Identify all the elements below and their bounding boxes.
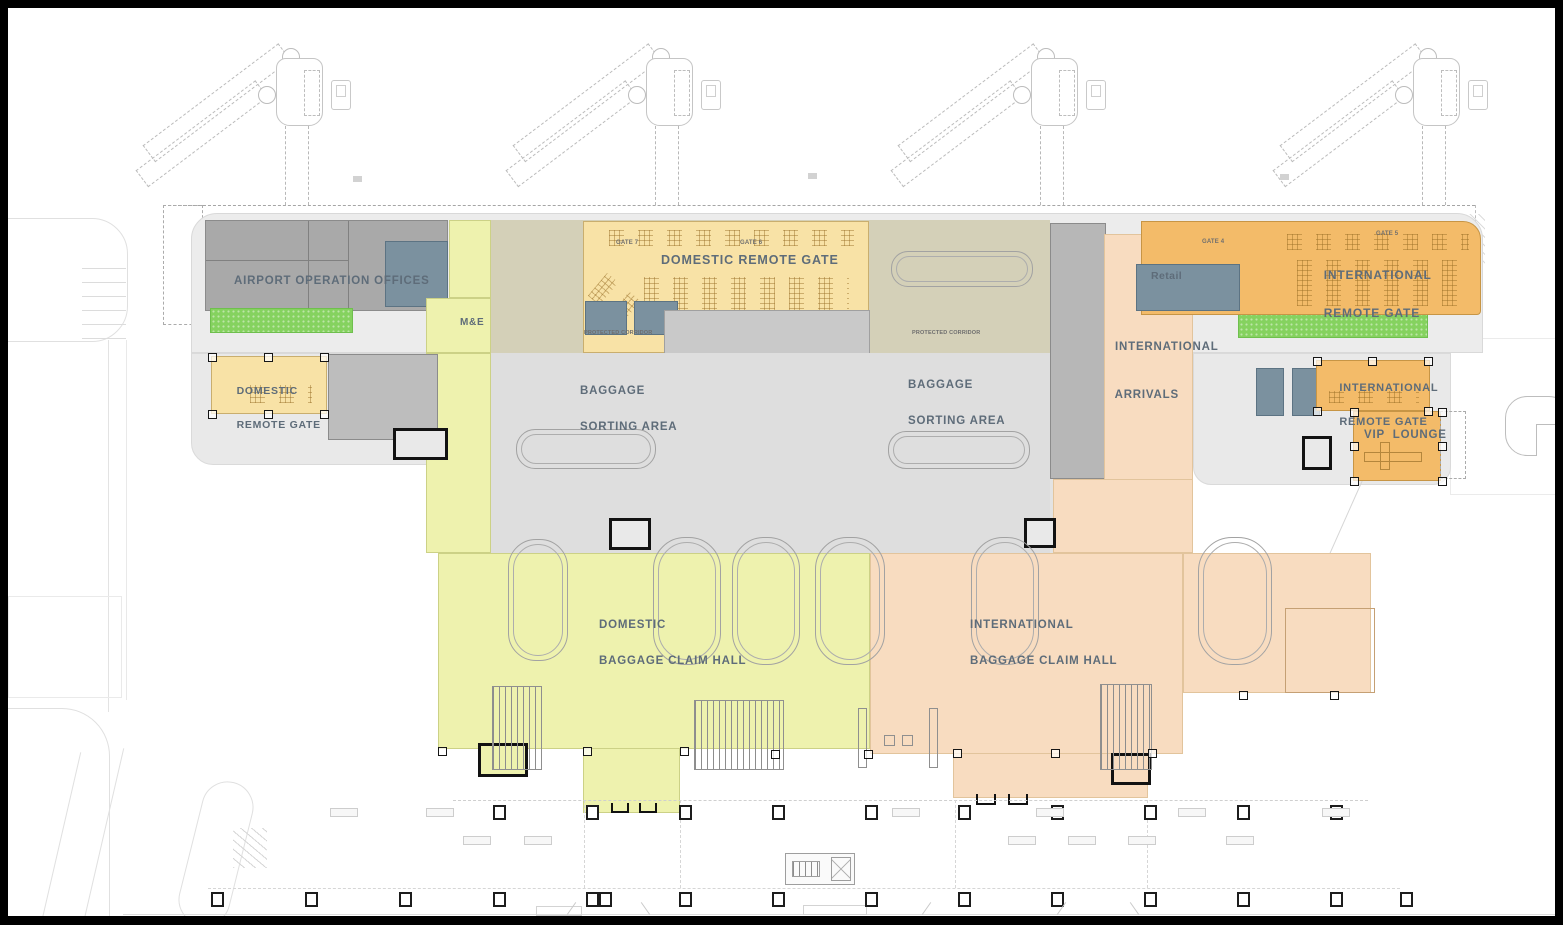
- edge-column-marker: [1313, 407, 1322, 416]
- bench-marker: [1226, 836, 1254, 845]
- label-line: ARRIVALS: [1115, 389, 1179, 401]
- landscape-strip-left: [210, 308, 353, 333]
- edge-column-marker: [1424, 407, 1433, 416]
- label-line: INTERNATIONAL: [1324, 268, 1432, 282]
- edge-column-marker: [1330, 691, 1339, 700]
- bench-marker: [426, 808, 454, 817]
- fixed-walkway-inner: [1441, 70, 1457, 116]
- guide-line: [1063, 126, 1064, 205]
- edge-column-marker: [583, 747, 592, 756]
- column-marker: [1330, 892, 1343, 907]
- edge-column-marker: [680, 747, 689, 756]
- column-marker: [772, 892, 785, 907]
- edge-column-marker: [864, 750, 873, 759]
- label-gate-6: GATE 6: [740, 240, 762, 246]
- toilet-block-right: [1100, 684, 1152, 770]
- black-room-3: [1024, 518, 1056, 548]
- edge-column-marker: [1148, 749, 1157, 758]
- plaza-dashed-line: [453, 800, 1368, 801]
- label-intl-remote-gate-main: INTERNATIONAL REMOTE GATE: [1307, 247, 1432, 342]
- rotunda-icon: [1395, 86, 1413, 104]
- edge-column-marker: [1350, 408, 1359, 417]
- label-me: M&E: [460, 315, 484, 331]
- bench-marker: [1178, 808, 1206, 817]
- bench-marker: [1008, 836, 1036, 845]
- column-marker: [1144, 892, 1157, 907]
- label-domestic-claim: DOMESTIC BAGGAGE CLAIM HALL: [583, 598, 746, 688]
- seating-cluster-rows: [609, 230, 854, 246]
- rotunda-icon: [1013, 86, 1031, 104]
- edge-column-marker: [208, 353, 217, 362]
- kiosk-shaft-icon: [831, 857, 851, 881]
- guide-line: [1040, 126, 1041, 205]
- edge-column-marker: [1350, 442, 1359, 451]
- domestic-hall-entry-bay: [583, 748, 680, 813]
- island-chevrons: [233, 828, 267, 868]
- toilet-block-left: [492, 686, 542, 770]
- edge-column-marker: [1438, 477, 1447, 486]
- label-baggage-sorting-right: BAGGAGE SORTING AREA: [892, 358, 1005, 448]
- label-baggage-sorting-left: BAGGAGE SORTING AREA: [564, 364, 677, 454]
- plaza-dashed-line-2: [208, 888, 1400, 889]
- label-line: INTERNATIONAL: [1115, 341, 1219, 353]
- edge-column-marker: [320, 410, 329, 419]
- column-marker: [772, 805, 785, 820]
- label-line: REMOTE GATE: [1324, 306, 1420, 320]
- column-marker: [493, 892, 506, 907]
- column-marker: [679, 892, 692, 907]
- rotunda-icon: [258, 86, 276, 104]
- edge-column-marker: [1424, 357, 1433, 366]
- column-marker: [1144, 805, 1157, 820]
- vip-furniture: [1364, 452, 1422, 462]
- edge-column-marker: [1368, 357, 1377, 366]
- apron-equipment-box: [331, 80, 351, 110]
- baggage-carousel: [891, 251, 1033, 287]
- apron-marker-box: [353, 176, 362, 182]
- black-room-1: [393, 428, 448, 460]
- apron-marker-box: [1280, 174, 1289, 180]
- road-curve-bottom-left: [8, 708, 110, 916]
- column-marker: [1237, 805, 1250, 820]
- road-tick: [922, 902, 931, 915]
- column-marker: [399, 892, 412, 907]
- label-line: BAGGAGE: [580, 385, 645, 397]
- road-loop-right-notch: [1536, 424, 1555, 456]
- road-tick: [641, 902, 650, 915]
- edge-column-marker: [264, 353, 273, 362]
- label-line: SORTING AREA: [580, 421, 677, 433]
- bench-marker: [1322, 808, 1350, 817]
- east-hall-rooms: [1285, 608, 1375, 693]
- jet-bridge-group-4: [1295, 10, 1495, 205]
- arrivals-core-rooms-left: [1050, 223, 1106, 479]
- entry-door: [611, 803, 629, 813]
- label-line: INTERNATIONAL: [970, 619, 1074, 631]
- road-tick: [1130, 902, 1139, 915]
- column-marker: [958, 805, 971, 820]
- column-marker: [211, 892, 224, 907]
- edge-column-marker: [320, 353, 329, 362]
- jet-bridge-icon: [136, 80, 268, 187]
- column-marker: [599, 892, 612, 907]
- label-international-arrivals: INTERNATIONAL ARRIVALS: [1099, 311, 1219, 431]
- label-line: BAGGAGE CLAIM HALL: [599, 655, 746, 667]
- edge-column-marker: [264, 410, 273, 419]
- guide-line: [285, 126, 286, 205]
- curb-rect-1: [536, 906, 582, 916]
- jet-bridge-group-2: [528, 10, 728, 205]
- jet-bridge-icon: [1273, 80, 1405, 187]
- column-marker: [865, 892, 878, 907]
- toilet-block-center: [694, 700, 784, 770]
- apron-equipment-box: [701, 80, 721, 110]
- apron-equipment-box: [1468, 80, 1488, 110]
- edge-column-marker: [1313, 357, 1322, 366]
- fixed-walkway-inner: [1059, 70, 1075, 116]
- label-line: INTERNATIONAL: [1339, 382, 1438, 394]
- column-marker: [865, 805, 878, 820]
- label-line: SORTING AREA: [908, 415, 1005, 427]
- label-protected-corridor-right: PROTECTED CORRIDOR: [912, 330, 980, 336]
- column-marker: [679, 805, 692, 820]
- edge-column-marker: [1239, 691, 1248, 700]
- wet-core-right-1: [1256, 368, 1284, 416]
- zone-international-arrivals-lower: [1053, 479, 1193, 553]
- bench-marker: [524, 836, 552, 845]
- edge-column-marker: [1438, 408, 1447, 417]
- fixed-walkway-inner: [674, 70, 690, 116]
- label-international-claim: INTERNATIONAL BAGGAGE CLAIM HALL: [954, 598, 1117, 688]
- column-marker: [305, 892, 318, 907]
- plan-sheet: AIRPORT OPERATION OFFICES M&E DOMESTIC R…: [8, 8, 1555, 916]
- security-desk: [858, 708, 867, 768]
- kiosk-building: [785, 853, 855, 885]
- claim-carousel: [1198, 537, 1272, 665]
- label-gate-4: GATE 4: [1202, 239, 1224, 245]
- black-room-2: [609, 518, 651, 550]
- jet-bridge-group-3: [913, 10, 1113, 205]
- label-vip-lounge: VIP LOUNGE: [1364, 427, 1447, 445]
- plaza-dashed-v: [955, 800, 956, 888]
- label-airport-operation-offices: AIRPORT OPERATION OFFICES: [234, 273, 430, 291]
- label-line: DOMESTIC: [237, 385, 298, 397]
- entry-door: [639, 803, 657, 813]
- jet-bridge-group-1: [158, 10, 358, 205]
- apron-marker-box: [808, 173, 817, 179]
- security-gate: [884, 735, 895, 746]
- column-marker: [1237, 892, 1250, 907]
- edge-column-marker: [953, 749, 962, 758]
- apron-equipment-box: [1086, 80, 1106, 110]
- jet-bridge-icon: [891, 80, 1023, 187]
- bench-marker: [463, 836, 491, 845]
- guide-line: [678, 126, 679, 205]
- rotunda-icon: [628, 86, 646, 104]
- label-line: REMOTE GATE: [237, 419, 321, 431]
- label-gate-5: GATE 5: [1376, 231, 1398, 237]
- office-wall: [348, 221, 349, 310]
- edge-column-marker: [1438, 442, 1447, 451]
- zone-me-shaft: [449, 220, 491, 298]
- edge-column-marker: [438, 747, 447, 756]
- security-desk: [929, 708, 938, 768]
- fixed-walkway-inner: [304, 70, 320, 116]
- edge-column-marker: [208, 410, 217, 419]
- roofline-dashed-top: [163, 205, 1475, 206]
- curb-rect-2: [803, 905, 867, 915]
- label-domestic-remote-gate-main: DOMESTIC REMOTE GATE: [661, 251, 839, 270]
- column-marker: [586, 805, 599, 820]
- label-line: BAGGAGE CLAIM HALL: [970, 655, 1117, 667]
- bench-marker: [892, 808, 920, 817]
- label-gate-7: GATE 7: [616, 240, 638, 246]
- label-line: DOMESTIC: [599, 619, 666, 631]
- column-marker: [493, 805, 506, 820]
- road-edge-left-2: [126, 340, 127, 700]
- parking-stripes: [82, 255, 126, 339]
- edge-column-marker: [771, 750, 780, 759]
- bench-marker: [1036, 808, 1064, 817]
- guide-line: [655, 126, 656, 205]
- bench-marker: [1128, 836, 1156, 845]
- claim-carousel: [815, 537, 885, 665]
- edge-column-marker: [1350, 477, 1359, 486]
- guide-line: [308, 126, 309, 205]
- security-gate: [902, 735, 913, 746]
- jet-bridge-icon: [506, 80, 638, 187]
- label-protected-corridor-left: PROTECTED CORRIDOR: [584, 330, 652, 336]
- plaza-dashed-v: [584, 800, 585, 888]
- column-marker: [1400, 892, 1413, 907]
- label-domestic-remote-gate-left: DOMESTIC REMOTE GATE: [222, 366, 321, 451]
- edge-column-marker: [1051, 749, 1060, 758]
- site-rect-bottom-left: [8, 596, 122, 698]
- office-wall: [206, 260, 348, 261]
- column-marker: [958, 892, 971, 907]
- guide-line: [1422, 126, 1423, 205]
- bench-marker: [1068, 836, 1096, 845]
- label-line: BAGGAGE: [908, 379, 973, 391]
- office-wall: [308, 221, 309, 310]
- floor-plan-canvas: AIRPORT OPERATION OFFICES M&E DOMESTIC R…: [0, 0, 1563, 925]
- bench-marker: [330, 808, 358, 817]
- label-retail: Retail: [1151, 268, 1182, 284]
- kiosk-stair-icon: [792, 861, 820, 877]
- column-marker: [586, 892, 599, 907]
- claim-carousel: [508, 539, 568, 661]
- guide-line: [1445, 126, 1446, 205]
